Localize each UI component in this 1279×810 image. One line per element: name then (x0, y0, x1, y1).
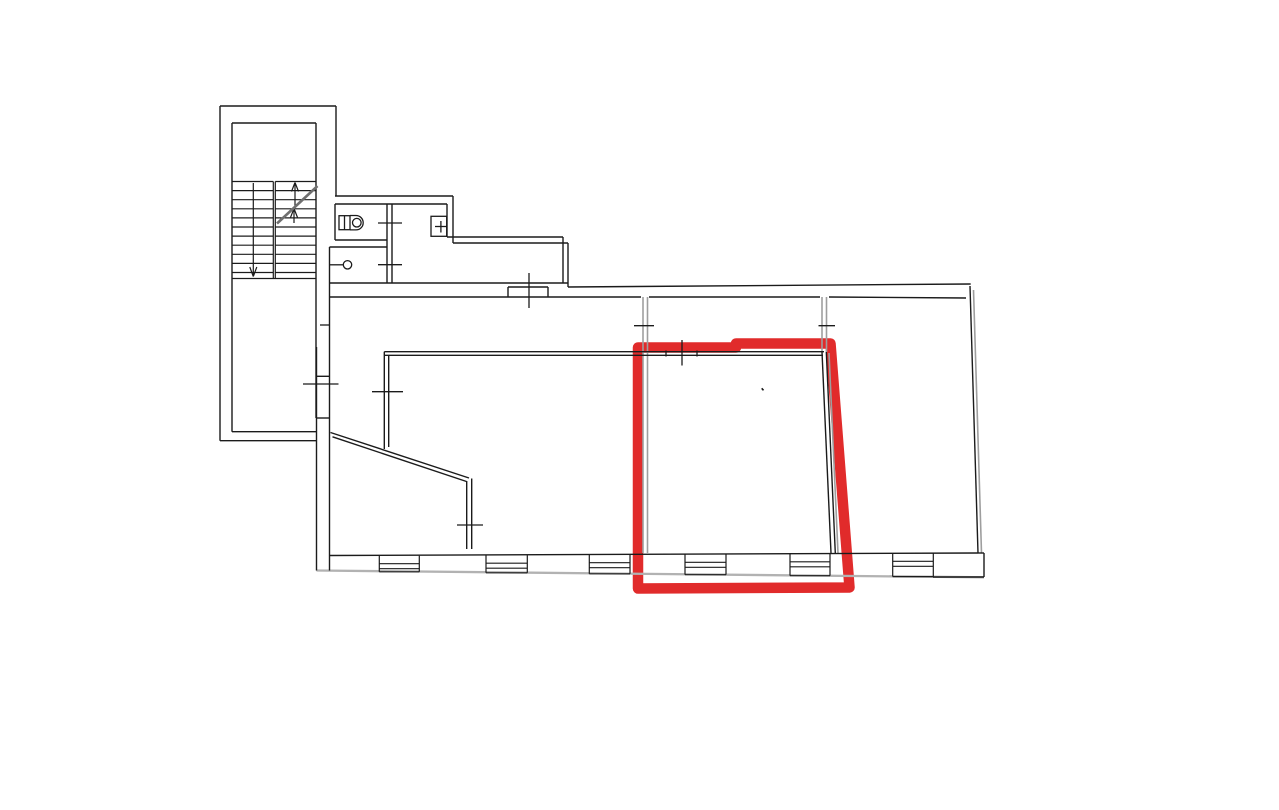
window (893, 553, 934, 576)
window (685, 554, 726, 574)
gray-walls (317, 290, 985, 577)
toilet-icon (339, 216, 363, 230)
wall (333, 437, 467, 482)
wall (829, 297, 966, 298)
window (790, 554, 830, 576)
floor-plan-page (0, 0, 1279, 810)
window (589, 555, 630, 574)
floor-plan (0, 0, 1279, 810)
pen-mark (762, 388, 764, 390)
stair-down-arrow (250, 183, 257, 277)
wall (331, 433, 470, 479)
staircase (232, 182, 318, 279)
window (379, 556, 419, 572)
highlight-layer (638, 344, 850, 589)
highlight-rectangle (638, 344, 850, 589)
washbasin-icon (330, 261, 352, 269)
wall (568, 284, 971, 287)
window (486, 555, 527, 573)
sink-icon (431, 216, 447, 236)
door-ticks (303, 223, 835, 525)
walls (220, 106, 984, 577)
pen-speck (762, 388, 764, 390)
wall (330, 553, 979, 556)
